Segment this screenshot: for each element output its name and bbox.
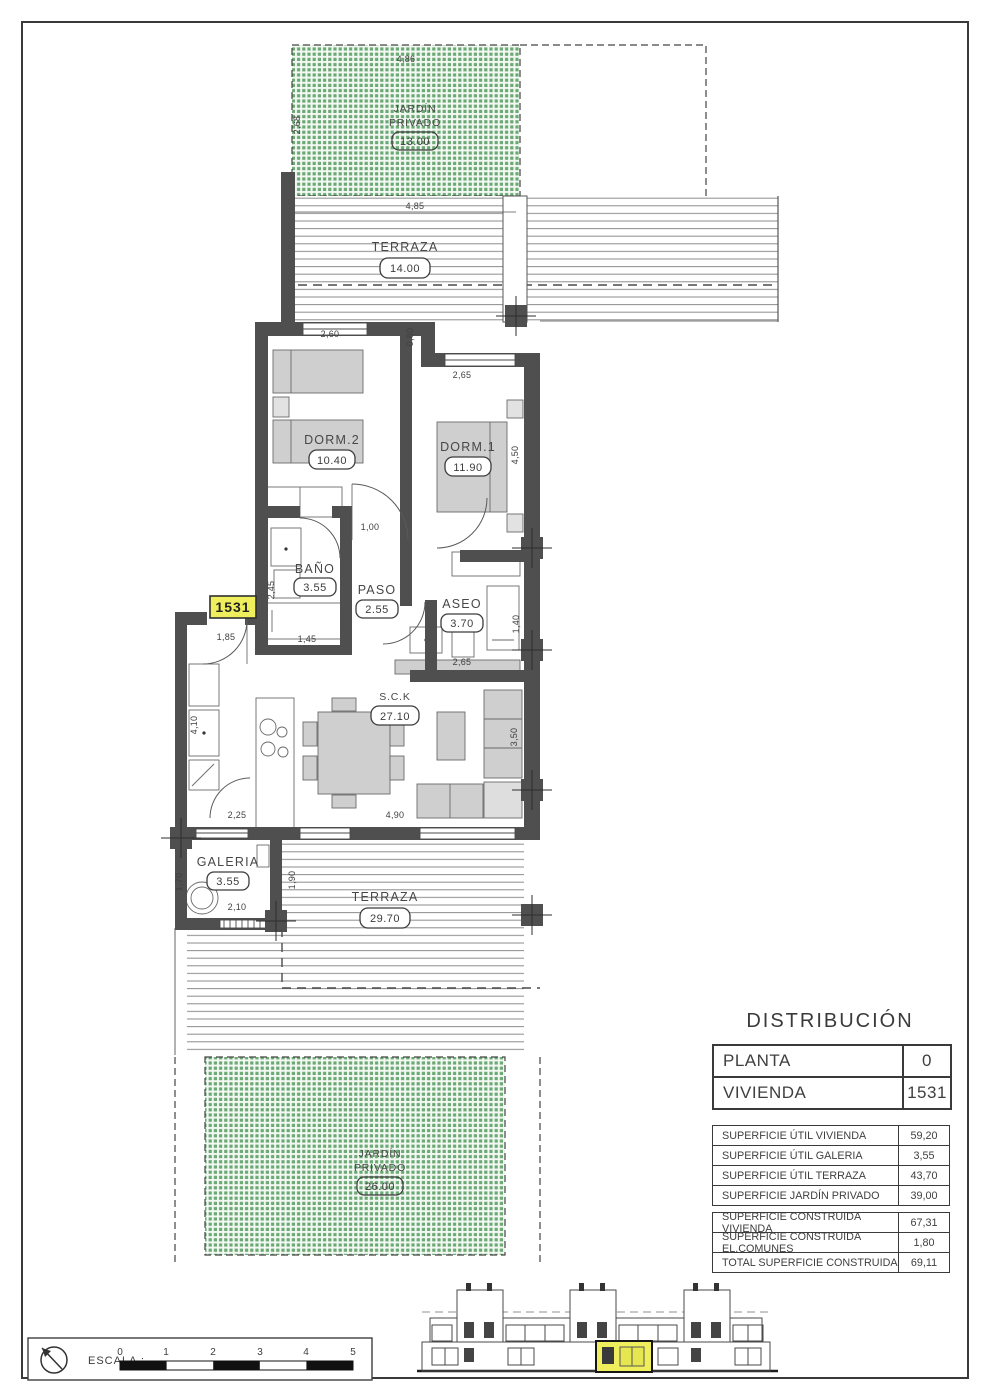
sck-area: 27.10: [380, 711, 410, 723]
row-value: 1,80: [898, 1233, 949, 1252]
scale-tick-5: 5: [350, 1347, 356, 1358]
dim-terrace-offset: 1,90: [287, 871, 297, 890]
terrace-top-label: TERRAZA: [372, 240, 439, 254]
aseo-area: 3.70: [450, 618, 473, 630]
dim-kitchen-width: 2,25: [228, 810, 247, 820]
dim-dorm1-width: 2,65: [453, 370, 472, 380]
row-value: 67,31: [898, 1213, 949, 1232]
table-row: SUPERFICIE ÚTIL VIVIENDA 59,20: [713, 1126, 949, 1145]
highlighted-unit: [596, 1341, 652, 1372]
row-label: SUPERFICIE ÚTIL TERRAZA: [713, 1166, 898, 1185]
dorm1-label: DORM.1: [440, 440, 496, 454]
row-label: SUPERFICIE CONSTRUIDA EL.COMUNES: [713, 1233, 898, 1252]
paso-area: 2.55: [365, 604, 388, 616]
distribution-title: DISTRIBUCIÓN: [712, 1010, 948, 1033]
scale-box: ESCALA : 0 1 2 3 4 5: [28, 1338, 372, 1380]
scale-tick-3: 3: [257, 1347, 263, 1358]
scale-tick-2: 2: [210, 1347, 216, 1358]
dim-galeria-depth: 1,70: [174, 873, 184, 892]
row-label: PLANTA: [714, 1046, 902, 1076]
dorm1-area: 11.90: [453, 462, 482, 474]
plan-sheet: 4,86 2,68 JARDÍN PRIVADO 13.00 4,85 TERR…: [0, 0, 990, 1400]
dim-kitchen-depth: 4,10: [189, 716, 199, 735]
table-row: SUPERFICIE ÚTIL TERRAZA 43,70: [713, 1165, 949, 1185]
bano-label: BAÑO: [295, 562, 335, 576]
dorm2-area: 10.40: [317, 455, 347, 467]
dim-dorm1-depth: 4,50: [510, 446, 520, 465]
table-row: SUPERFICIE CONSTRUIDA EL.COMUNES 1,80: [713, 1232, 949, 1252]
dorm2-label: DORM.2: [304, 433, 360, 447]
row-label: VIVIENDA: [714, 1078, 902, 1108]
dim-garden-top-depth: 2,68: [292, 116, 302, 135]
bano-area: 3.55: [303, 582, 326, 594]
scale-tick-1: 1: [163, 1347, 169, 1358]
dim-dorm2-width: 2,60: [321, 329, 340, 339]
galeria-area: 3.55: [216, 876, 239, 888]
row-label: SUPERFICIE ÚTIL GALERIA: [713, 1146, 898, 1165]
dim-living-width: 4,90: [386, 810, 405, 820]
dim-aseo-width: 2,65: [453, 657, 472, 667]
terrace-top-area: 14.00: [390, 263, 420, 275]
garden-bottom: JARDÍN PRIVADO 26.00: [175, 1057, 540, 1262]
table-row: VIVIENDA 1531: [714, 1076, 950, 1108]
paso-label: PASO: [358, 583, 397, 597]
row-label: SUPERFICIE JARDÍN PRIVADO: [713, 1186, 898, 1205]
dim-terrace-top-width: 4,85: [406, 201, 425, 211]
dim-paso-width: 1,00: [361, 522, 380, 532]
galeria-label: GALERIA: [197, 855, 260, 869]
garden-top-area: 13.00: [400, 136, 430, 148]
row-value: 43,70: [898, 1166, 949, 1185]
dim-bano-depth: 2,45: [266, 581, 276, 600]
dim-garden-top-width: 4,86: [397, 54, 416, 64]
row-value: 0: [902, 1046, 950, 1076]
table-row: SUPERFICIE JARDÍN PRIVADO 39,00: [713, 1185, 949, 1205]
useful-surface-table: SUPERFICIE ÚTIL VIVIENDA 59,20 SUPERFICI…: [712, 1125, 950, 1206]
row-value: 59,20: [898, 1126, 949, 1145]
terrace-bottom-label: TERRAZA: [352, 890, 419, 904]
dim-terrace-step: 0,80: [405, 328, 415, 347]
table-row: PLANTA 0: [714, 1046, 950, 1076]
scale-tick-0: 0: [117, 1347, 123, 1358]
row-value: 39,00: [898, 1186, 949, 1205]
garden-bottom-label-1: JARDÍN: [359, 1147, 402, 1160]
built-surface-table: SUPERFICIE CONSTRUIDA VIVIENDA 67,31 SUP…: [712, 1212, 950, 1273]
row-label: SUPERFICIE ÚTIL VIVIENDA: [713, 1126, 898, 1145]
table-row: TOTAL SUPERFICIE CONSTRUIDA 69,11: [713, 1252, 949, 1272]
dim-entry-width: 1,85: [217, 632, 236, 642]
row-value: 3,55: [898, 1146, 949, 1165]
sck-label: S.C.K: [379, 691, 410, 703]
table-row: SUPERFICIE CONSTRUIDA VIVIENDA 67,31: [713, 1213, 949, 1232]
garden-bottom-label-2: PRIVADO: [354, 1162, 406, 1174]
dim-aseo-depth: 1,40: [511, 615, 521, 634]
scale-bar: [120, 1361, 353, 1370]
scale-tick-4: 4: [303, 1347, 309, 1358]
row-label: SUPERFICIE CONSTRUIDA VIVIENDA: [713, 1213, 898, 1232]
garden-top: 4,86 2,68 JARDÍN PRIVADO 13.00: [292, 45, 706, 196]
row-value: 69,11: [898, 1253, 949, 1272]
garden-top-label-2: PRIVADO: [389, 117, 441, 129]
garden-bottom-area: 26.00: [365, 1181, 395, 1193]
distribution-header-table: PLANTA 0 VIVIENDA 1531: [712, 1044, 952, 1110]
dim-living-depth: 3,50: [509, 728, 519, 747]
unit-tag-number: 1531: [215, 599, 250, 615]
garden-top-label-1: JARDÍN: [394, 102, 437, 115]
dim-bano-width: 1,45: [298, 634, 317, 644]
terrace-bottom-area: 29.70: [370, 913, 400, 925]
unit-tag: 1531: [210, 596, 256, 618]
table-row: SUPERFICIE ÚTIL GALERIA 3,55: [713, 1145, 949, 1165]
aseo-label: ASEO: [442, 597, 482, 611]
building-elevation: [417, 1283, 778, 1372]
dim-galeria-width: 2,10: [228, 902, 247, 912]
row-value: 1531: [902, 1078, 950, 1108]
row-label: TOTAL SUPERFICIE CONSTRUIDA: [713, 1253, 898, 1272]
